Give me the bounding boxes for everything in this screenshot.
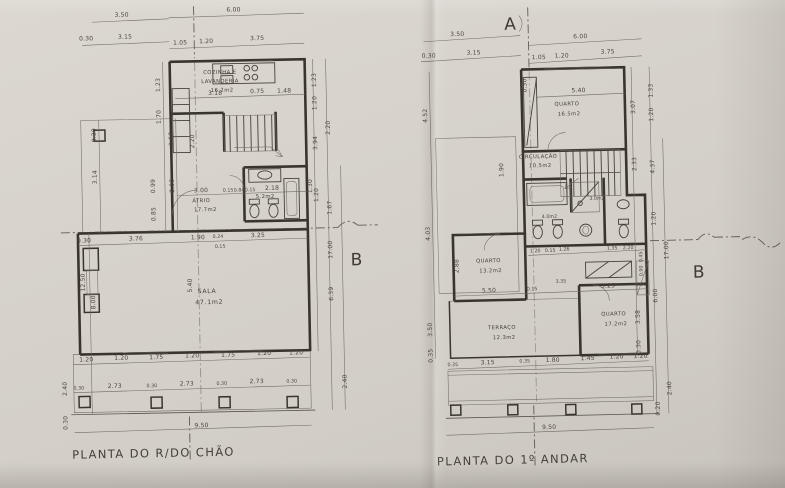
svg-text:1.20: 1.20 — [633, 353, 647, 360]
svg-text:0.30: 0.30 — [286, 378, 297, 384]
room-area-terr: 12.3m2 — [493, 335, 516, 342]
svg-text:1.20: 1.20 — [530, 248, 541, 254]
svg-text:0.75: 0.75 — [250, 88, 264, 95]
svg-text:2.40: 2.40 — [342, 374, 349, 388]
room-label-atrio: ÁTRIO — [192, 197, 210, 204]
svg-text:4.37: 4.37 — [649, 159, 656, 173]
svg-text:1.35: 1.35 — [607, 245, 618, 251]
svg-text:0.20: 0.20 — [655, 401, 662, 415]
svg-text:3.00: 3.00 — [194, 187, 208, 194]
section-a-line — [528, 7, 529, 67]
svg-text:2.73: 2.73 — [108, 383, 122, 390]
sink-icon — [580, 224, 592, 236]
svg-text:2.20: 2.20 — [623, 245, 634, 251]
svg-text:9.50: 9.50 — [194, 422, 208, 429]
room-label-q1: QUARTO — [554, 101, 579, 108]
svg-text:1.90: 1.90 — [498, 163, 505, 177]
svg-text:1.48: 1.48 — [277, 87, 291, 94]
svg-text:0.35: 0.35 — [519, 358, 530, 364]
svg-text:8.00: 8.00 — [90, 295, 97, 309]
svg-text:0.99: 0.99 — [150, 179, 157, 193]
svg-text:17.00: 17.00 — [327, 241, 334, 259]
svg-text:0.15: 0.15 — [215, 244, 226, 250]
svg-text:3.75: 3.75 — [601, 48, 615, 55]
room-area-atrio: 17.7m2 — [194, 207, 217, 213]
room-area-circ: 10.5m2 — [529, 163, 552, 170]
svg-text:2.20: 2.20 — [189, 134, 196, 148]
svg-text:1.70: 1.70 — [156, 110, 163, 124]
svg-text:5.40: 5.40 — [187, 278, 194, 292]
svg-text:1.20: 1.20 — [79, 356, 93, 363]
svg-text:3.94: 3.94 — [312, 136, 319, 150]
svg-text:5.40: 5.40 — [571, 87, 585, 94]
svg-text:0.90: 0.90 — [639, 265, 645, 276]
svg-text:0.30: 0.30 — [146, 383, 157, 389]
section-marker-a-tail — [519, 16, 522, 32]
paper-fold-crease — [420, 0, 446, 488]
svg-text:3.58: 3.58 — [635, 310, 642, 324]
svg-text:1.23: 1.23 — [311, 73, 318, 87]
upper-stairs — [560, 149, 621, 196]
svg-text:1.20: 1.20 — [289, 349, 303, 356]
pergola-columns — [451, 401, 642, 418]
toilet-icon — [533, 226, 542, 239]
terrace-base-line — [71, 410, 315, 415]
svg-text:3.50: 3.50 — [450, 31, 464, 38]
toilet-icon — [250, 205, 259, 218]
bidet-icon — [553, 225, 562, 238]
svg-text:1.05: 1.05 — [173, 39, 187, 46]
svg-text:2.73: 2.73 — [180, 380, 194, 387]
section-marker-a: A — [504, 15, 516, 35]
room-label-kitchen2: LAVANDERIA — [201, 78, 239, 85]
svg-text:1.67: 1.67 — [326, 201, 333, 215]
svg-text:2.88: 2.88 — [453, 259, 460, 273]
svg-text:1.20: 1.20 — [257, 350, 271, 357]
svg-text:3.75: 3.75 — [250, 35, 264, 42]
svg-text:6.00: 6.00 — [573, 33, 587, 40]
room-area-q2: 13.2m2 — [479, 268, 502, 275]
svg-text:2.20: 2.20 — [325, 121, 332, 135]
photo-shadow-right — [715, 0, 785, 488]
section-a-line — [194, 6, 195, 58]
stairs — [224, 115, 283, 158]
section-marker-b-left: B — [350, 250, 362, 270]
ground-floor-caption: PLANTA DO R/DO CHÃO — [72, 444, 235, 462]
room-label-terr: TERRAÇO — [487, 325, 516, 332]
svg-text:3.25: 3.25 — [601, 282, 615, 289]
svg-text:2.40: 2.40 — [666, 381, 673, 395]
svg-text:0.15: 0.15 — [545, 248, 556, 254]
svg-text:3.18: 3.18 — [208, 90, 222, 97]
svg-text:3.25: 3.25 — [251, 232, 265, 239]
room-label-sala: SALA — [197, 288, 216, 295]
svg-text:1.20: 1.20 — [311, 96, 318, 110]
svg-text:0.85: 0.85 — [150, 207, 157, 221]
svg-text:1.80: 1.80 — [546, 357, 560, 364]
svg-text:2.73: 2.73 — [250, 378, 264, 385]
svg-text:3.15: 3.15 — [467, 49, 481, 56]
ground-floor-plan: B COZINHA E LAVANDERIA 16.2m2 ÁTRIO 17.7… — [21, 0, 402, 482]
svg-text:0.30: 0.30 — [636, 282, 647, 288]
svg-text:1.20: 1.20 — [199, 38, 213, 45]
svg-text:3.76: 3.76 — [129, 235, 143, 242]
pergola-beams — [445, 371, 659, 419]
svg-text:8.00: 8.00 — [169, 179, 176, 193]
wardrobe-bedroom3 — [585, 261, 631, 278]
room-area-q3: 17.2m2 — [604, 321, 627, 328]
svg-text:0.15: 0.15 — [223, 188, 234, 194]
svg-text:2.40: 2.40 — [62, 382, 69, 396]
svg-text:0.30: 0.30 — [73, 385, 84, 391]
blueprint-photo: B COZINHA E LAVANDERIA 16.2m2 ÁTRIO 17.7… — [0, 0, 785, 488]
svg-text:1.33: 1.33 — [647, 83, 654, 97]
svg-text:17.00: 17.00 — [663, 241, 670, 259]
svg-text:1.90: 1.90 — [191, 234, 205, 241]
room-area-q1: 16.5m2 — [558, 111, 581, 118]
room-area-bath: 4.0m2 — [542, 214, 557, 220]
svg-text:3.35: 3.35 — [556, 279, 567, 285]
svg-text:3.07: 3.07 — [630, 100, 637, 114]
svg-text:0.15: 0.15 — [245, 187, 256, 193]
svg-text:3.50: 3.50 — [115, 12, 129, 19]
svg-text:1.20: 1.20 — [313, 188, 320, 202]
svg-text:0.45: 0.45 — [638, 251, 644, 262]
svg-text:1.05: 1.05 — [532, 54, 546, 61]
svg-text:1.75: 1.75 — [221, 352, 235, 359]
photo-shadow-bottom — [0, 462, 785, 488]
svg-text:1.20: 1.20 — [185, 352, 199, 359]
svg-text:1.26: 1.26 — [559, 246, 570, 252]
sink-icon-2 — [617, 200, 629, 209]
svg-text:0.30: 0.30 — [216, 381, 227, 387]
room-label-q2: QUARTO — [476, 258, 501, 265]
svg-text:0.24: 0.24 — [213, 234, 224, 240]
svg-text:1.20: 1.20 — [648, 107, 655, 121]
svg-text:5.50: 5.50 — [482, 287, 496, 294]
roof-hatch-left — [436, 137, 519, 294]
svg-text:0.30: 0.30 — [91, 128, 98, 142]
svg-text:1.20: 1.20 — [114, 355, 128, 362]
svg-text:6.00: 6.00 — [226, 6, 240, 13]
svg-text:0.84: 0.84 — [234, 187, 245, 193]
svg-text:1.20: 1.20 — [650, 211, 657, 225]
svg-text:1.20: 1.20 — [609, 353, 623, 360]
svg-text:1.23: 1.23 — [155, 78, 162, 92]
svg-text:0.15: 0.15 — [527, 286, 538, 292]
svg-text:12.50: 12.50 — [80, 273, 87, 291]
ground-floor-drawing: B COZINHA E LAVANDERIA 16.2m2 ÁTRIO 17.7… — [21, 0, 402, 482]
svg-text:0.35: 0.35 — [447, 362, 458, 368]
room-label-q3: QUARTO — [601, 311, 626, 318]
svg-text:2.33: 2.33 — [631, 157, 638, 171]
svg-text:6.39: 6.39 — [328, 287, 335, 301]
svg-text:0.30: 0.30 — [77, 237, 91, 244]
toilet-icon-2 — [619, 225, 628, 238]
svg-text:3.58: 3.58 — [168, 132, 175, 146]
svg-text:1.20: 1.20 — [555, 52, 569, 59]
svg-text:2.18: 2.18 — [265, 185, 279, 192]
svg-text:3.15: 3.15 — [481, 359, 495, 366]
svg-text:1.45: 1.45 — [581, 355, 595, 362]
svg-text:0.30: 0.30 — [62, 416, 69, 430]
room-label-circ: CIRCULAÇÃO — [519, 153, 557, 161]
bidet-icon — [269, 204, 278, 217]
stove-icon — [244, 65, 258, 80]
upper-dim-labels: 3.50 0.30 3.15 6.00 1.05 1.20 3.75 5.40 … — [420, 26, 674, 433]
svg-text:0.30: 0.30 — [521, 78, 528, 92]
svg-text:9.50: 9.50 — [542, 424, 556, 431]
pergola-hatch — [448, 367, 654, 406]
svg-text:1.30: 1.30 — [307, 179, 314, 193]
svg-text:6.00: 6.00 — [652, 288, 659, 302]
room-area-shower: 3.0m2 — [589, 196, 604, 202]
section-marker-b-right: B — [693, 262, 705, 282]
upper-bath-fixtures — [527, 181, 650, 298]
room-area-bath: 5.2m2 — [256, 194, 275, 200]
room-area-sala: 47.1m2 — [195, 299, 223, 307]
svg-text:1.75: 1.75 — [149, 354, 163, 361]
ground-walls — [75, 59, 311, 355]
svg-text:0.30: 0.30 — [79, 35, 93, 42]
svg-text:3.15: 3.15 — [118, 33, 132, 40]
room-label-kitchen: COZINHA E — [203, 69, 237, 76]
svg-text:3.14: 3.14 — [92, 170, 99, 184]
